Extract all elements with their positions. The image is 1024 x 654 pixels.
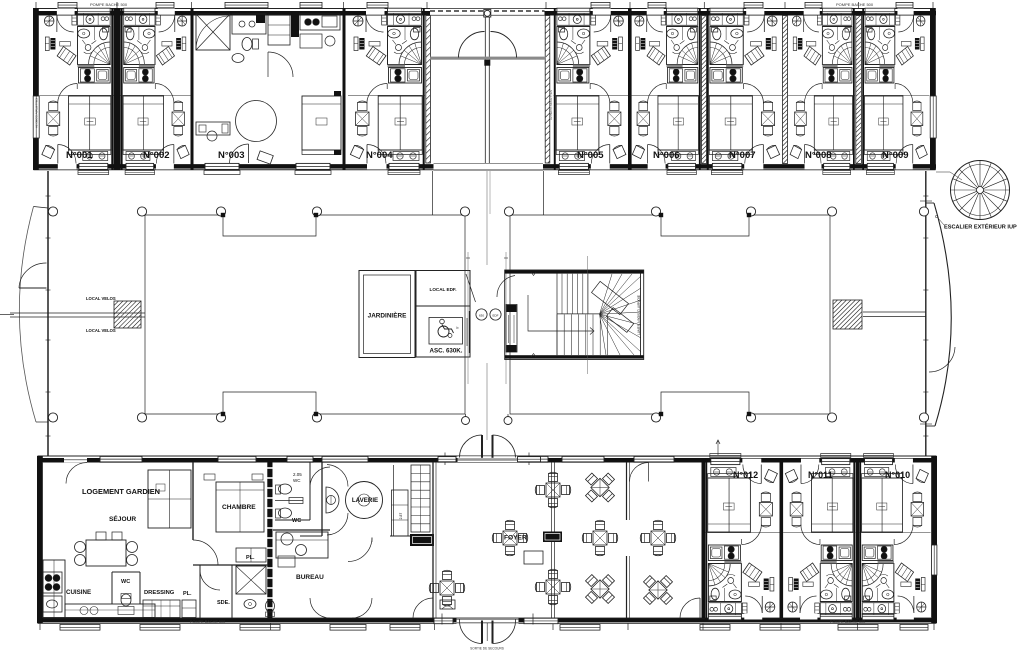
svg-text:ASC. 630K.: ASC. 630K. [429, 348, 462, 355]
svg-text:A2 BECO AIRLETTES: A2 BECO AIRLETTES [35, 98, 39, 128]
svg-text:2.05: 2.05 [293, 472, 302, 477]
svg-text:N°002: N°002 [143, 150, 170, 161]
svg-text:CHAMBRE: CHAMBRE [222, 504, 256, 511]
svg-text:A2 BECO AIRLETTES: A2 BECO AIRLETTES [549, 90, 553, 120]
svg-text:2.87: 2.87 [399, 513, 403, 520]
svg-text:LAMES A BOIS CLAIRVOIE: LAMES A BOIS CLAIRVOIE [637, 295, 641, 335]
svg-text:LOCAL EDF.: LOCAL EDF. [430, 287, 457, 292]
svg-text:N°004: N°004 [366, 150, 393, 161]
svg-text:ESCALIER EXTÉRIEUR IUP: ESCALIER EXTÉRIEUR IUP [944, 223, 1017, 231]
svg-text:N°006: N°006 [653, 150, 680, 161]
svg-text:DRESSING: DRESSING [144, 590, 175, 596]
svg-text:SORTIE DE SECOURS: SORTIE DE SECOURS [470, 647, 504, 651]
svg-text:PL.: PL. [183, 591, 192, 597]
svg-text:N°009: N°009 [882, 150, 909, 161]
svg-text:SÉJOUR: SÉJOUR [109, 514, 136, 523]
svg-text:WC: WC [292, 518, 301, 524]
svg-text:SDE.: SDE. [217, 600, 230, 606]
svg-text:N°007: N°007 [729, 150, 756, 161]
svg-text:WC: WC [293, 478, 301, 483]
svg-text:N°003: N°003 [218, 150, 245, 161]
svg-text:LOCAL VELOS: LOCAL VELOS [86, 328, 116, 333]
svg-text:BUREAU: BUREAU [296, 574, 324, 581]
svg-text:b: b [457, 326, 459, 330]
svg-text:N°005: N°005 [577, 150, 604, 161]
svg-text:POMPE BACHE 500: POMPE BACHE 500 [830, 620, 865, 624]
svg-text:PL.: PL. [246, 555, 255, 561]
svg-text:N°011: N°011 [808, 470, 833, 480]
svg-text:POMPE BACHE 500: POMPE BACHE 500 [836, 2, 874, 7]
svg-text:POMPE BACHE 500: POMPE BACHE 500 [90, 2, 128, 7]
svg-text:CUISINE: CUISINE [66, 589, 91, 596]
svg-text:LAVERIE: LAVERIE [352, 497, 378, 504]
svg-text:WC: WC [121, 579, 130, 585]
svg-text:630: 630 [479, 314, 484, 318]
svg-text:EDF: EDF [493, 314, 499, 318]
svg-text:N°008: N°008 [805, 150, 832, 161]
svg-text:N°010: N°010 [885, 470, 910, 480]
svg-text:POMPE BACHE 500: POMPE BACHE 500 [190, 620, 225, 624]
svg-text:N°001: N°001 [66, 150, 93, 161]
svg-text:N°012: N°012 [733, 470, 758, 480]
svg-text:JARDINIÈRE: JARDINIÈRE [368, 311, 407, 320]
svg-text:LOCAL VELOS: LOCAL VELOS [86, 296, 116, 301]
